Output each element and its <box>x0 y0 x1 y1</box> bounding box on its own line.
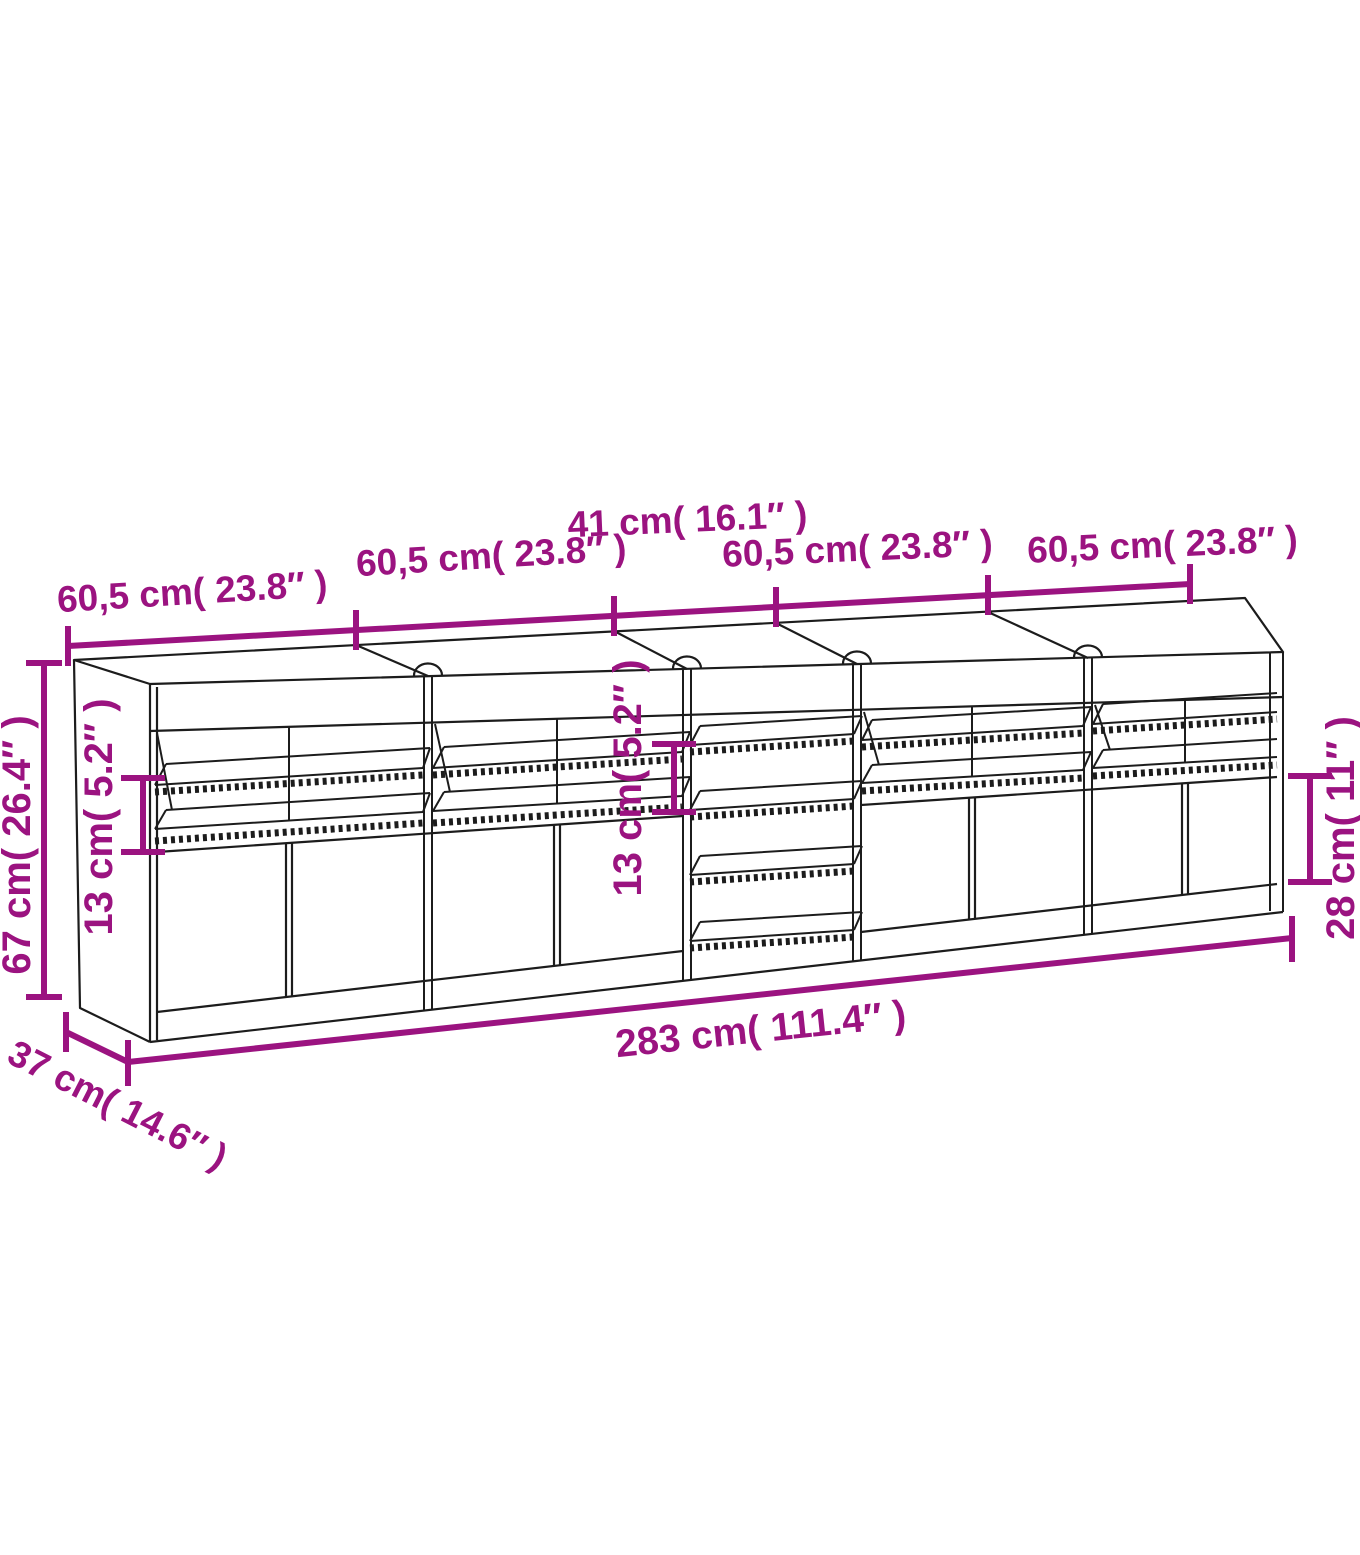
glass-shelves <box>155 693 1277 785</box>
dim-label-overall-height: 67 cm( 26.4″ ) <box>0 715 39 974</box>
cabinet-drawing <box>74 598 1283 1042</box>
dimension-diagram: 60,5 cm( 23.8″ ) 60,5 cm( 23.8″ ) 41 cm(… <box>0 0 1360 1555</box>
dimension-line-depth <box>66 1012 128 1062</box>
dimension-line-overall-width <box>128 916 1292 1086</box>
unit-dividers <box>424 652 1283 1010</box>
dim-label-top-segment-1: 60,5 cm( 23.8″ ) <box>56 563 329 620</box>
led-strip-hatching <box>155 719 1277 948</box>
dim-label-top-segment-4: 60,5 cm( 23.8″ ) <box>1026 518 1298 571</box>
sideboard-dimension-drawing: 60,5 cm( 23.8″ ) 60,5 cm( 23.8″ ) 41 cm(… <box>0 0 1360 1555</box>
dim-label-shelf-gap-left: 13 cm( 5.2″ ) <box>77 698 121 935</box>
cable-hole-arc <box>1074 645 1102 658</box>
cable-hole-arc <box>843 652 871 664</box>
dim-label-door-height: 28 cm( 11″ ) <box>1319 716 1360 940</box>
dim-label-shelf-gap-middle: 13 cm( 5.2″ ) <box>606 659 650 896</box>
cable-hole-arc <box>414 663 442 676</box>
